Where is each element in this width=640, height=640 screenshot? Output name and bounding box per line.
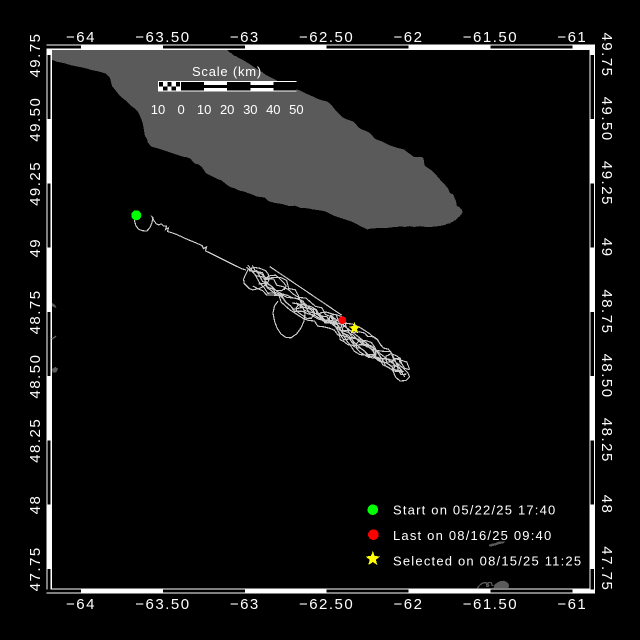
svg-text:−63.50: −63.50 <box>135 596 190 613</box>
svg-text:Selected on 08/15/25 11:25: Selected on 08/15/25 11:25 <box>393 554 582 569</box>
svg-text:−61: −61 <box>557 29 587 46</box>
svg-text:40: 40 <box>266 102 280 117</box>
svg-text:49.50: 49.50 <box>598 97 615 142</box>
svg-text:−61.50: −61.50 <box>463 596 518 613</box>
svg-text:−62.50: −62.50 <box>299 596 354 613</box>
svg-text:48.50: 48.50 <box>598 354 615 399</box>
svg-text:48.25: 48.25 <box>598 418 615 463</box>
svg-text:−61: −61 <box>557 596 587 613</box>
svg-text:Scale (km): Scale (km) <box>192 64 262 79</box>
svg-text:Last on 08/16/25 09:40: Last on 08/16/25 09:40 <box>393 528 552 543</box>
svg-text:−63: −63 <box>230 29 260 46</box>
svg-text:−62.50: −62.50 <box>299 29 354 46</box>
svg-text:0: 0 <box>177 102 184 117</box>
svg-text:48.75: 48.75 <box>598 289 615 334</box>
svg-text:20: 20 <box>220 102 234 117</box>
svg-text:48: 48 <box>27 495 44 515</box>
svg-text:48.50: 48.50 <box>27 354 44 399</box>
svg-text:49.75: 49.75 <box>598 32 615 77</box>
svg-text:−62: −62 <box>394 596 424 613</box>
svg-text:48: 48 <box>598 495 615 515</box>
svg-text:−64: −64 <box>66 596 96 613</box>
svg-text:49.75: 49.75 <box>27 32 44 77</box>
svg-text:−64: −64 <box>66 29 96 46</box>
svg-text:−63.50: −63.50 <box>135 29 190 46</box>
svg-text:49: 49 <box>27 238 44 258</box>
svg-text:48.75: 48.75 <box>27 289 44 334</box>
svg-text:10: 10 <box>151 102 165 117</box>
svg-text:−63: −63 <box>230 596 260 613</box>
svg-text:49.25: 49.25 <box>27 161 44 206</box>
svg-text:Start on 05/22/25 17:40: Start on 05/22/25 17:40 <box>393 503 556 518</box>
svg-text:−62: −62 <box>394 29 424 46</box>
svg-text:49.50: 49.50 <box>27 97 44 142</box>
svg-text:30: 30 <box>243 102 257 117</box>
svg-text:10: 10 <box>197 102 211 117</box>
svg-text:50: 50 <box>289 102 303 117</box>
svg-text:49: 49 <box>598 238 615 258</box>
svg-text:47.75: 47.75 <box>27 546 44 591</box>
svg-text:−61.50: −61.50 <box>463 29 518 46</box>
svg-text:49.25: 49.25 <box>598 161 615 206</box>
svg-text:48.25: 48.25 <box>27 418 44 463</box>
svg-text:47.75: 47.75 <box>598 546 615 591</box>
